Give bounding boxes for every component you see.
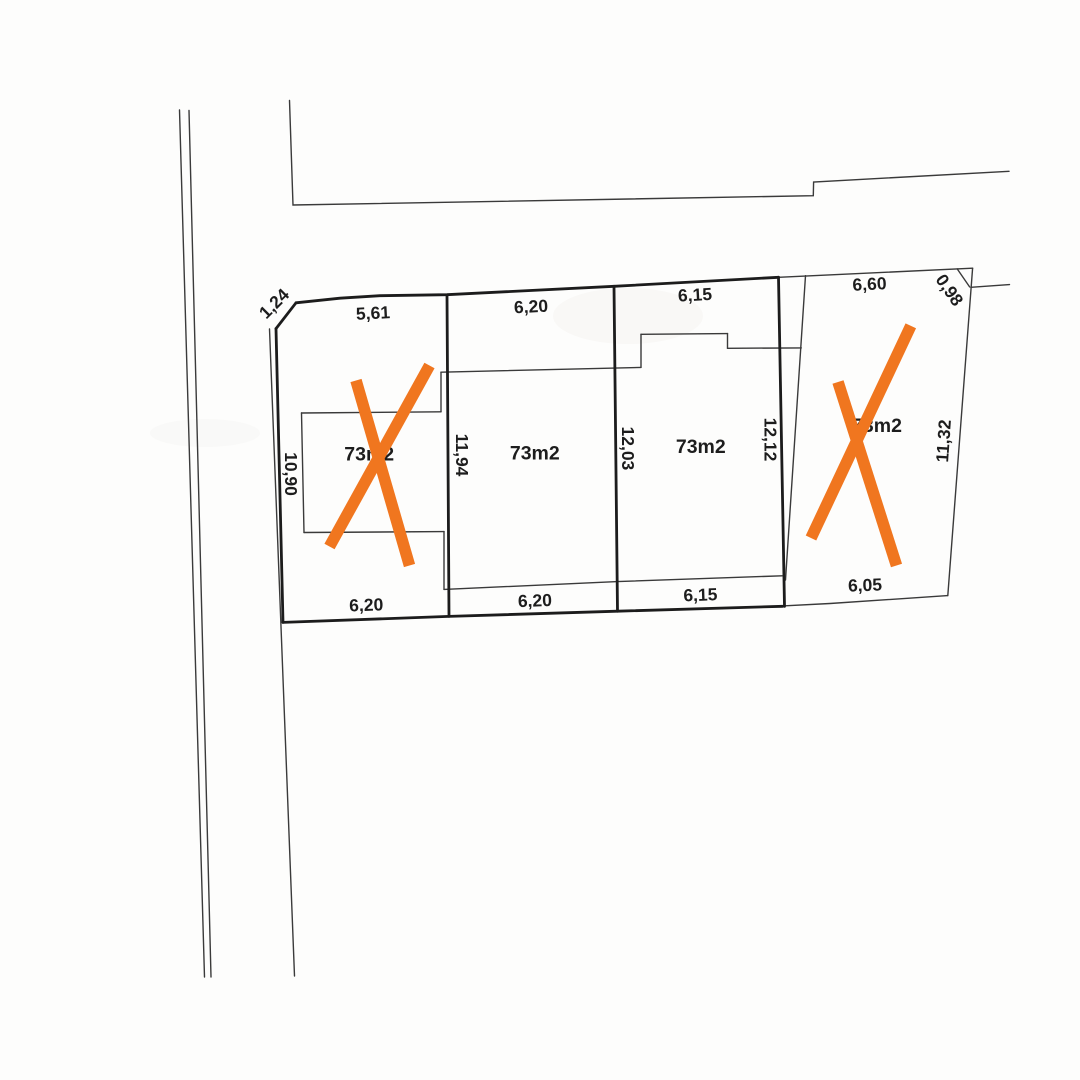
svg-text:73m2: 73m2 — [510, 443, 560, 465]
svg-text:6,05: 6,05 — [848, 574, 883, 595]
svg-text:11,32: 11,32 — [932, 419, 955, 463]
svg-text:6,20: 6,20 — [349, 594, 384, 615]
svg-text:12,03: 12,03 — [618, 427, 638, 471]
svg-text:73m2: 73m2 — [676, 436, 726, 458]
svg-text:12,12: 12,12 — [761, 418, 781, 462]
svg-text:5,61: 5,61 — [355, 302, 390, 324]
svg-text:6,20: 6,20 — [518, 590, 553, 611]
svg-text:6,20: 6,20 — [513, 296, 548, 318]
svg-text:11,94: 11,94 — [452, 434, 472, 477]
svg-text:10,90: 10,90 — [281, 452, 301, 496]
svg-text:6,15: 6,15 — [683, 584, 718, 605]
svg-text:6,15: 6,15 — [677, 284, 712, 306]
svg-text:6,60: 6,60 — [852, 273, 887, 295]
